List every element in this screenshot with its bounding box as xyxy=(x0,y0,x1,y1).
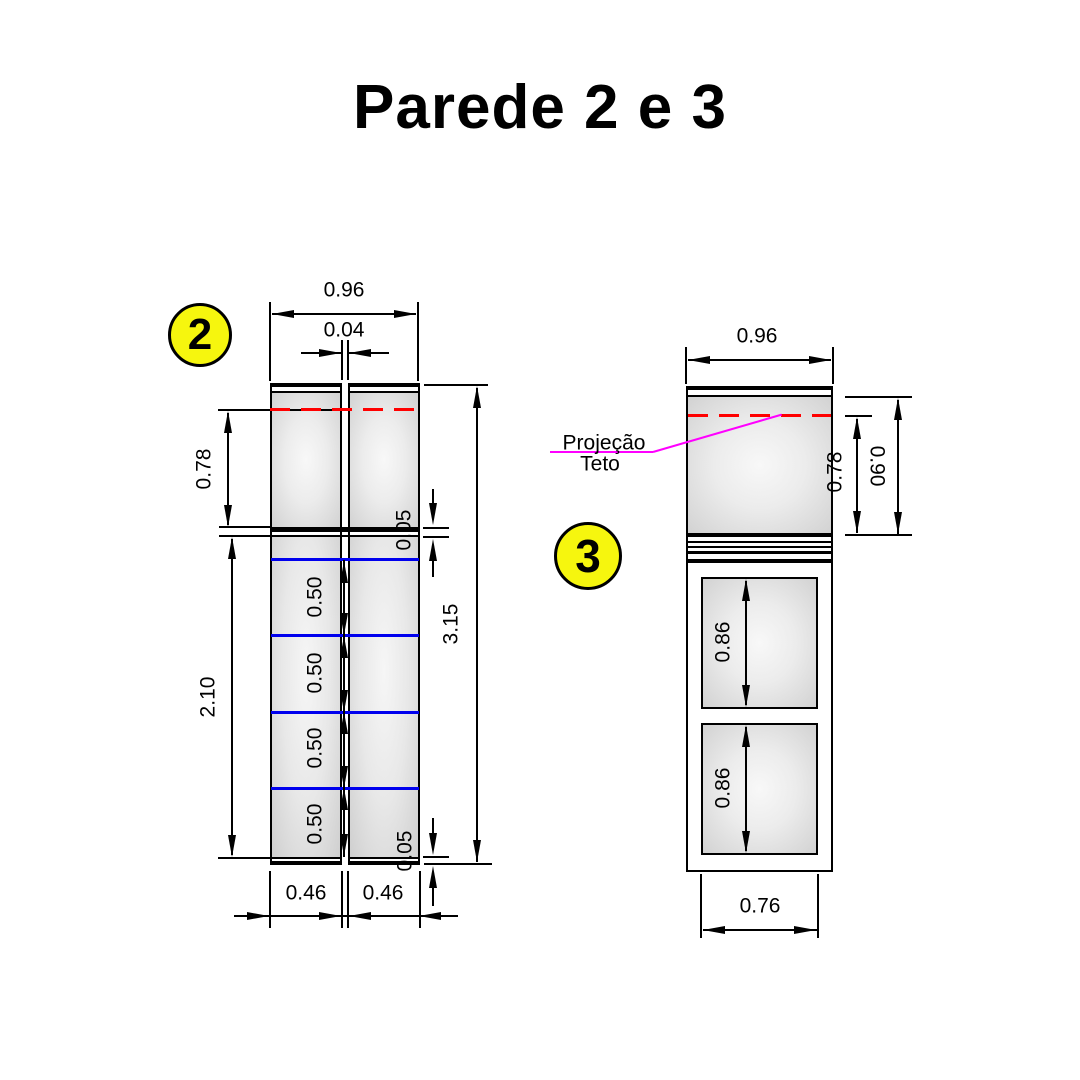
dim-arrow xyxy=(703,926,725,934)
balloon-3: 3 xyxy=(554,522,622,590)
wall3-rail-band xyxy=(686,537,833,563)
dim-panel-height: 0.90 xyxy=(867,446,888,487)
ext-line xyxy=(845,534,912,536)
projection-label-line2: Teto xyxy=(580,454,620,475)
technical-drawing-canvas: Parede 2 e 3 2 xyxy=(0,0,1080,1080)
wall3-upper-panel xyxy=(686,386,833,537)
dim-arrow xyxy=(794,926,816,934)
panel-body xyxy=(688,397,831,533)
dim-arrow xyxy=(688,356,710,364)
dim-inner-width: 0.76 xyxy=(740,896,781,917)
dim-width: 0.96 xyxy=(737,326,778,347)
ext-line xyxy=(832,347,834,384)
dim-ceiling-offset: 0.78 xyxy=(825,452,846,493)
dim-arrow xyxy=(894,398,902,420)
rail-line xyxy=(688,551,831,554)
rail-line xyxy=(688,541,831,543)
ext-line xyxy=(685,347,687,384)
ceiling-projection-line xyxy=(688,414,831,417)
dim-opening-2: 0.86 xyxy=(713,768,734,809)
projection-label-line1: Projeção xyxy=(563,433,646,454)
dim-arrow xyxy=(894,512,902,534)
dim-arrow xyxy=(742,725,750,747)
dim-opening-1: 0.86 xyxy=(713,622,734,663)
right-elevation: 3 Projeção Teto 0.96 xyxy=(0,0,1080,1080)
dim-arrow xyxy=(742,831,750,853)
ext-line xyxy=(700,874,702,938)
rail-line xyxy=(688,546,831,548)
dim-arrow xyxy=(742,685,750,707)
dim-arrow xyxy=(809,356,831,364)
dim-arrow xyxy=(853,511,861,533)
dim-arrow xyxy=(742,579,750,601)
ext-line xyxy=(817,874,819,938)
dim-arrow xyxy=(853,417,861,439)
